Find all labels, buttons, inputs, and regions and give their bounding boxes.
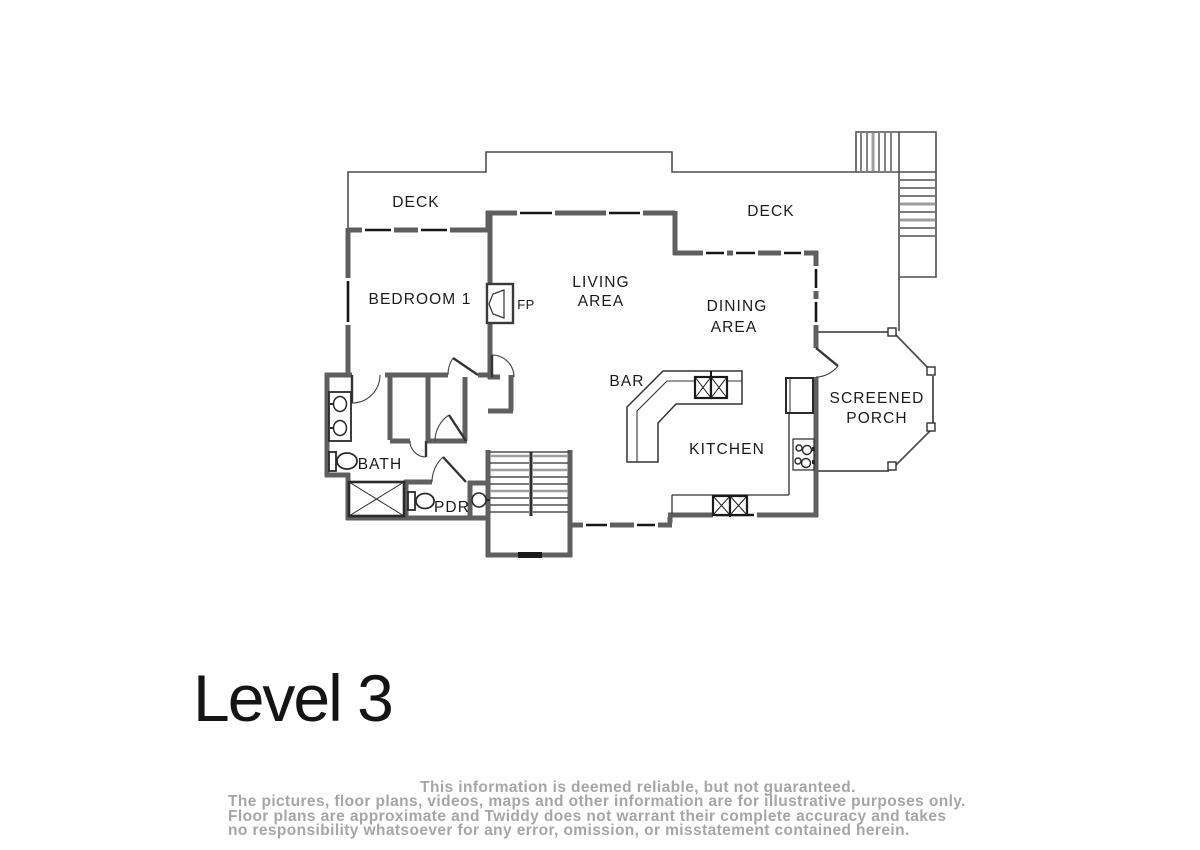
floor-plan-page: DECK DECK BEDROOM 1 LIVING AREA DINING A…: [0, 0, 1200, 850]
shower-icon: [349, 482, 404, 516]
room-label-living-2: AREA: [578, 293, 625, 310]
room-label-dining-2: AREA: [711, 319, 758, 336]
floor-plan-svg: DECK DECK BEDROOM 1 LIVING AREA DINING A…: [0, 0, 1200, 850]
room-label-porch-2: PORCH: [846, 410, 907, 427]
room-label-porch-1: SCREENED: [830, 390, 925, 407]
toilet-icon-pdr: [408, 492, 434, 510]
room-label-bedroom-1: BEDROOM 1: [369, 291, 472, 308]
kitchen-sink-icon: [713, 496, 747, 517]
windows: [348, 213, 816, 525]
disclaimer: This information is deemed reliable, but…: [228, 781, 1048, 839]
room-label-deck-left: DECK: [392, 194, 439, 211]
room-label-deck-right: DECK: [747, 203, 794, 220]
range-burners-icon: [793, 439, 815, 470]
interior-stairs-icon: [489, 452, 570, 558]
refrigerator-icon: [786, 378, 813, 413]
room-label-pdr: PDR: [434, 499, 470, 516]
room-label-living-1: LIVING: [572, 274, 629, 291]
room-label-kitchen: KITCHEN: [689, 441, 765, 458]
window-icon: [348, 213, 816, 525]
fireplace-icon: [487, 284, 513, 323]
door-swing-icon: [352, 348, 838, 482]
disclaimer-line-4: no responsibility whatsoever for any err…: [228, 824, 1048, 838]
toilet-icon: [329, 452, 357, 471]
level-title: Level 3: [193, 660, 392, 736]
exterior-stairs-icon: [856, 132, 936, 277]
room-label-fireplace: FP: [517, 297, 535, 312]
room-label-bath: BATH: [358, 456, 403, 473]
room-label-dining-1: DINING: [707, 298, 768, 315]
room-label-bar: BAR: [609, 373, 644, 390]
vanity-double-sink-icon: [329, 392, 351, 441]
